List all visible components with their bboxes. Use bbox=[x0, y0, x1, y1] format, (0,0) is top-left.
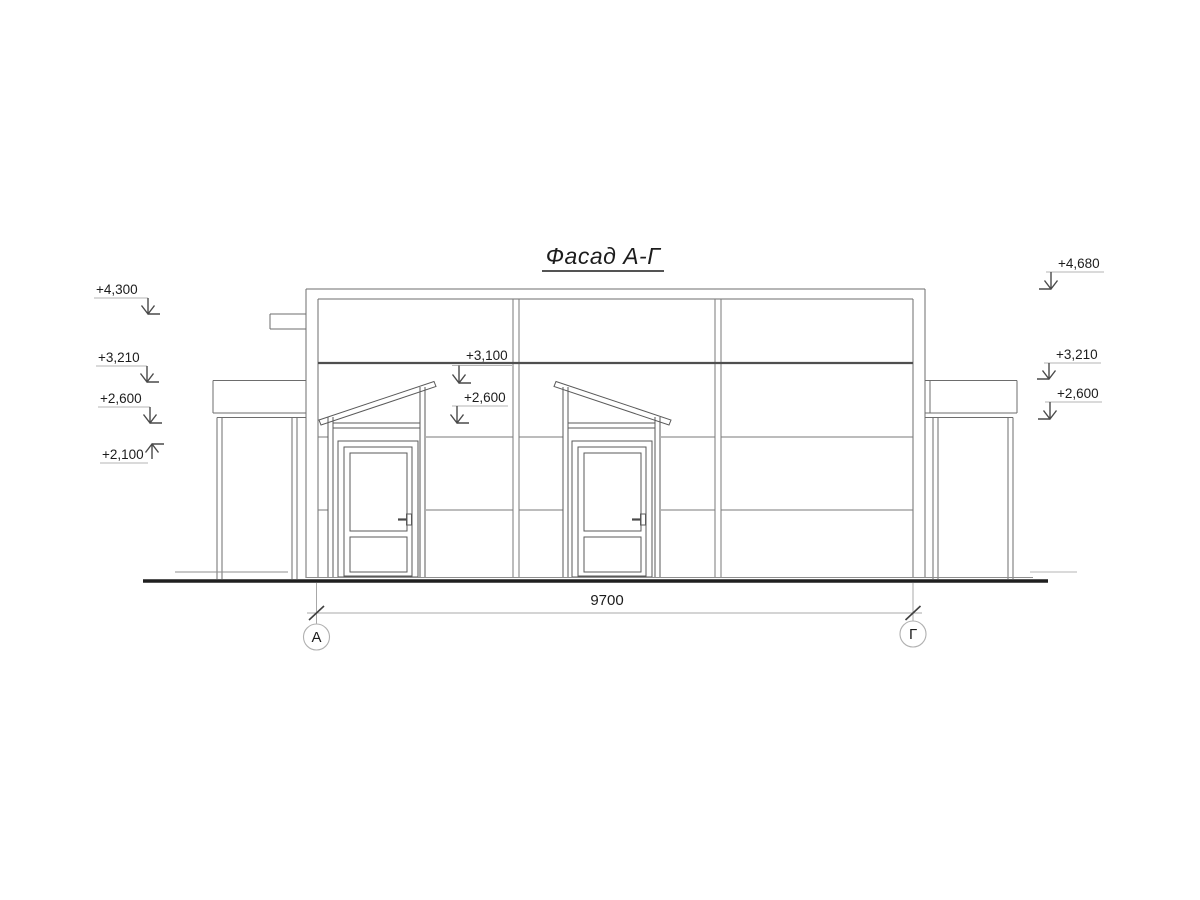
side-porch-right bbox=[925, 381, 1017, 580]
elevation-arrow-down-icon bbox=[142, 298, 161, 314]
elevation-mark-left-2100: +2,100 bbox=[100, 444, 164, 463]
elevation-mark-left-3210: +3,210 bbox=[96, 350, 159, 382]
elevation-mark-middle-2600: +2,600 bbox=[451, 390, 509, 423]
elevation-mark-right-4680: +4,680 bbox=[1039, 256, 1104, 289]
elevation-arrow-down-icon bbox=[141, 366, 160, 382]
canopy-slope-right bbox=[554, 382, 671, 426]
architectural-drawing-canvas: Фасад А-Г bbox=[0, 0, 1200, 900]
door-left-handle bbox=[398, 514, 412, 525]
elevation-mark-left-4300: +4,300 bbox=[94, 282, 160, 314]
building-outline bbox=[306, 289, 925, 578]
axis-label-g: Г bbox=[909, 626, 917, 643]
facade-elevation-drawing: Фасад А-Г bbox=[0, 0, 1200, 900]
elevation-label: +3,100 bbox=[466, 348, 508, 363]
side-porch-left bbox=[213, 381, 306, 580]
drawing-title-text: Фасад А-Г bbox=[546, 243, 661, 269]
elevation-arrow-up-icon bbox=[146, 444, 165, 459]
elevation-arrow-down-icon bbox=[1037, 363, 1056, 379]
elevation-label: +3,210 bbox=[98, 350, 140, 365]
elevation-label: +2,100 bbox=[102, 447, 144, 462]
elevation-arrow-down-icon bbox=[453, 366, 472, 384]
door-right bbox=[572, 441, 652, 577]
elevation-mark-left-2600: +2,600 bbox=[98, 391, 162, 423]
elevation-label: +3,210 bbox=[1056, 347, 1098, 362]
dimension-value: 9700 bbox=[590, 592, 623, 609]
dimension-9700: 9700 А Г bbox=[304, 583, 927, 650]
elevation-label: +4,300 bbox=[96, 282, 138, 297]
elevation-arrow-down-icon bbox=[144, 407, 163, 423]
drawing-title: Фасад А-Г bbox=[542, 243, 664, 271]
axis-bubble-a: А bbox=[304, 624, 330, 650]
door-right-bottom-panel bbox=[584, 537, 641, 572]
axis-bubble-g: Г bbox=[900, 621, 926, 647]
elevation-arrow-down-icon bbox=[1038, 402, 1057, 419]
door-left bbox=[338, 441, 418, 577]
elevation-label: +4,680 bbox=[1058, 256, 1100, 271]
canopy-slope-left bbox=[319, 382, 436, 426]
panel-joints-vertical bbox=[513, 299, 721, 578]
elevation-mark-middle-3100: +3,100 bbox=[452, 348, 512, 383]
elevation-mark-right-3210: +3,210 bbox=[1037, 347, 1101, 379]
door-left-bottom-panel bbox=[350, 537, 407, 572]
axis-label-a: А bbox=[311, 629, 321, 646]
elevation-label: +2,600 bbox=[1057, 386, 1099, 401]
elevation-mark-right-2600: +2,600 bbox=[1038, 386, 1102, 419]
elevation-arrow-down-icon bbox=[1039, 272, 1058, 289]
elevation-label: +2,600 bbox=[100, 391, 142, 406]
elevation-label: +2,600 bbox=[464, 390, 506, 405]
roof-protrusion bbox=[270, 314, 306, 329]
door-right-handle bbox=[632, 514, 646, 525]
elevation-arrow-down-icon bbox=[451, 406, 470, 423]
